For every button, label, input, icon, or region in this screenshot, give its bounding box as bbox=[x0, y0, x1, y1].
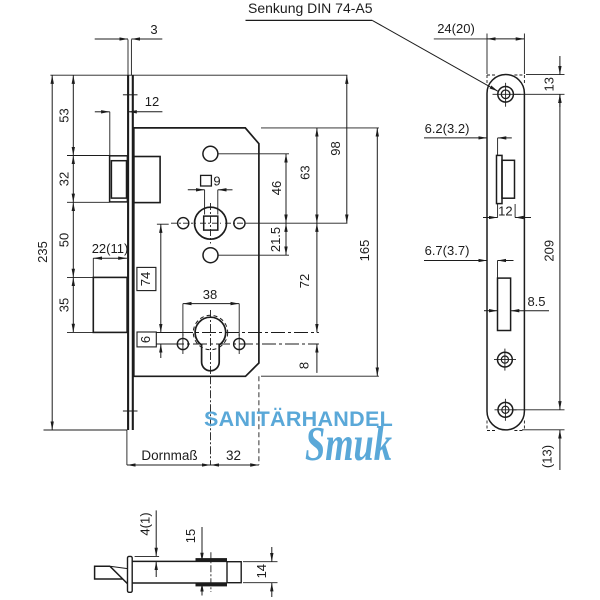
svg-text:63: 63 bbox=[297, 165, 312, 179]
svg-text:209: 209 bbox=[542, 240, 557, 262]
svg-text:(13): (13) bbox=[539, 445, 554, 468]
svg-text:9: 9 bbox=[213, 174, 220, 189]
svg-text:4(1): 4(1) bbox=[138, 512, 153, 535]
svg-text:50: 50 bbox=[56, 233, 71, 247]
svg-text:Senkung DIN 74-A5: Senkung DIN 74-A5 bbox=[248, 0, 373, 16]
svg-text:21.5: 21.5 bbox=[268, 227, 283, 252]
svg-text:74: 74 bbox=[138, 272, 153, 286]
svg-text:6.7(3.7): 6.7(3.7) bbox=[425, 243, 470, 258]
svg-text:14: 14 bbox=[254, 564, 269, 578]
svg-text:Dornmaß: Dornmaß bbox=[141, 448, 197, 463]
svg-text:38: 38 bbox=[203, 287, 217, 302]
svg-text:35: 35 bbox=[56, 298, 71, 312]
svg-text:235: 235 bbox=[35, 241, 50, 263]
svg-text:165: 165 bbox=[357, 240, 372, 262]
svg-text:6.2(3.2): 6.2(3.2) bbox=[425, 121, 470, 136]
svg-text:53: 53 bbox=[56, 108, 71, 122]
svg-text:32: 32 bbox=[226, 448, 241, 463]
svg-text:12: 12 bbox=[145, 94, 159, 109]
svg-text:3: 3 bbox=[150, 22, 157, 37]
svg-text:24(20): 24(20) bbox=[437, 21, 475, 36]
svg-text:72: 72 bbox=[297, 274, 312, 288]
svg-text:Smuk: Smuk bbox=[305, 416, 392, 471]
svg-text:22(11): 22(11) bbox=[92, 241, 129, 256]
svg-text:98: 98 bbox=[328, 141, 343, 155]
svg-text:15: 15 bbox=[183, 529, 198, 543]
svg-text:13: 13 bbox=[541, 77, 556, 91]
svg-text:46: 46 bbox=[269, 181, 284, 195]
svg-text:8.5: 8.5 bbox=[527, 294, 545, 309]
svg-text:6: 6 bbox=[138, 336, 153, 343]
svg-text:8: 8 bbox=[296, 362, 311, 369]
svg-text:32: 32 bbox=[56, 172, 71, 186]
svg-text:12: 12 bbox=[498, 204, 512, 219]
